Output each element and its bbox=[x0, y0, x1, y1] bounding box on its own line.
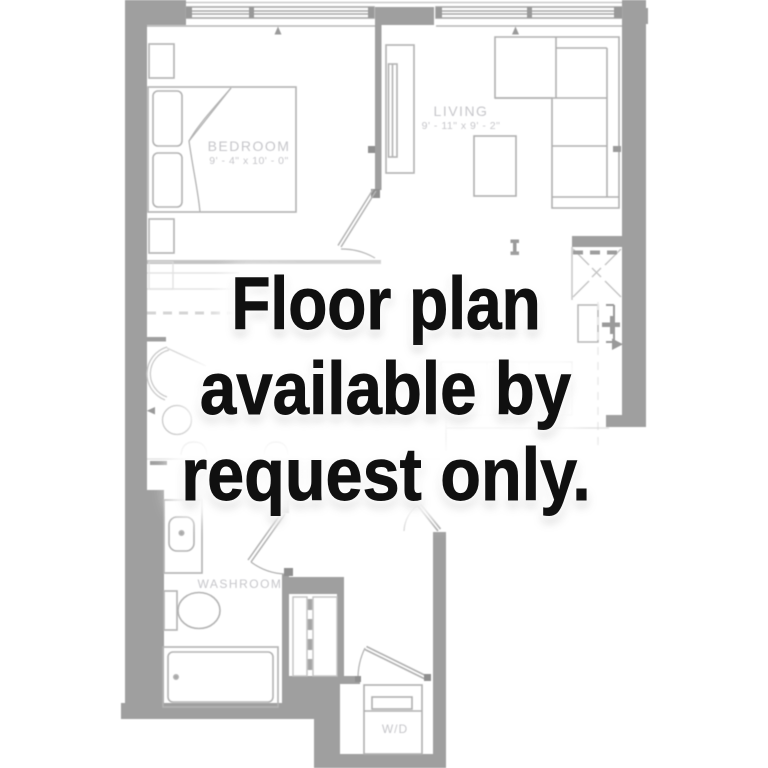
svg-text:WASHROOM: WASHROOM bbox=[198, 577, 283, 591]
svg-text:LIVING: LIVING bbox=[434, 103, 489, 119]
svg-text:BEDROOM: BEDROOM bbox=[208, 138, 291, 154]
svg-text:9' - 11" x 9' - 2": 9' - 11" x 9' - 2" bbox=[422, 120, 501, 132]
svg-text:W/D: W/D bbox=[382, 722, 408, 736]
svg-text:9' - 4" x 10' - 0": 9' - 4" x 10' - 0" bbox=[209, 155, 288, 167]
